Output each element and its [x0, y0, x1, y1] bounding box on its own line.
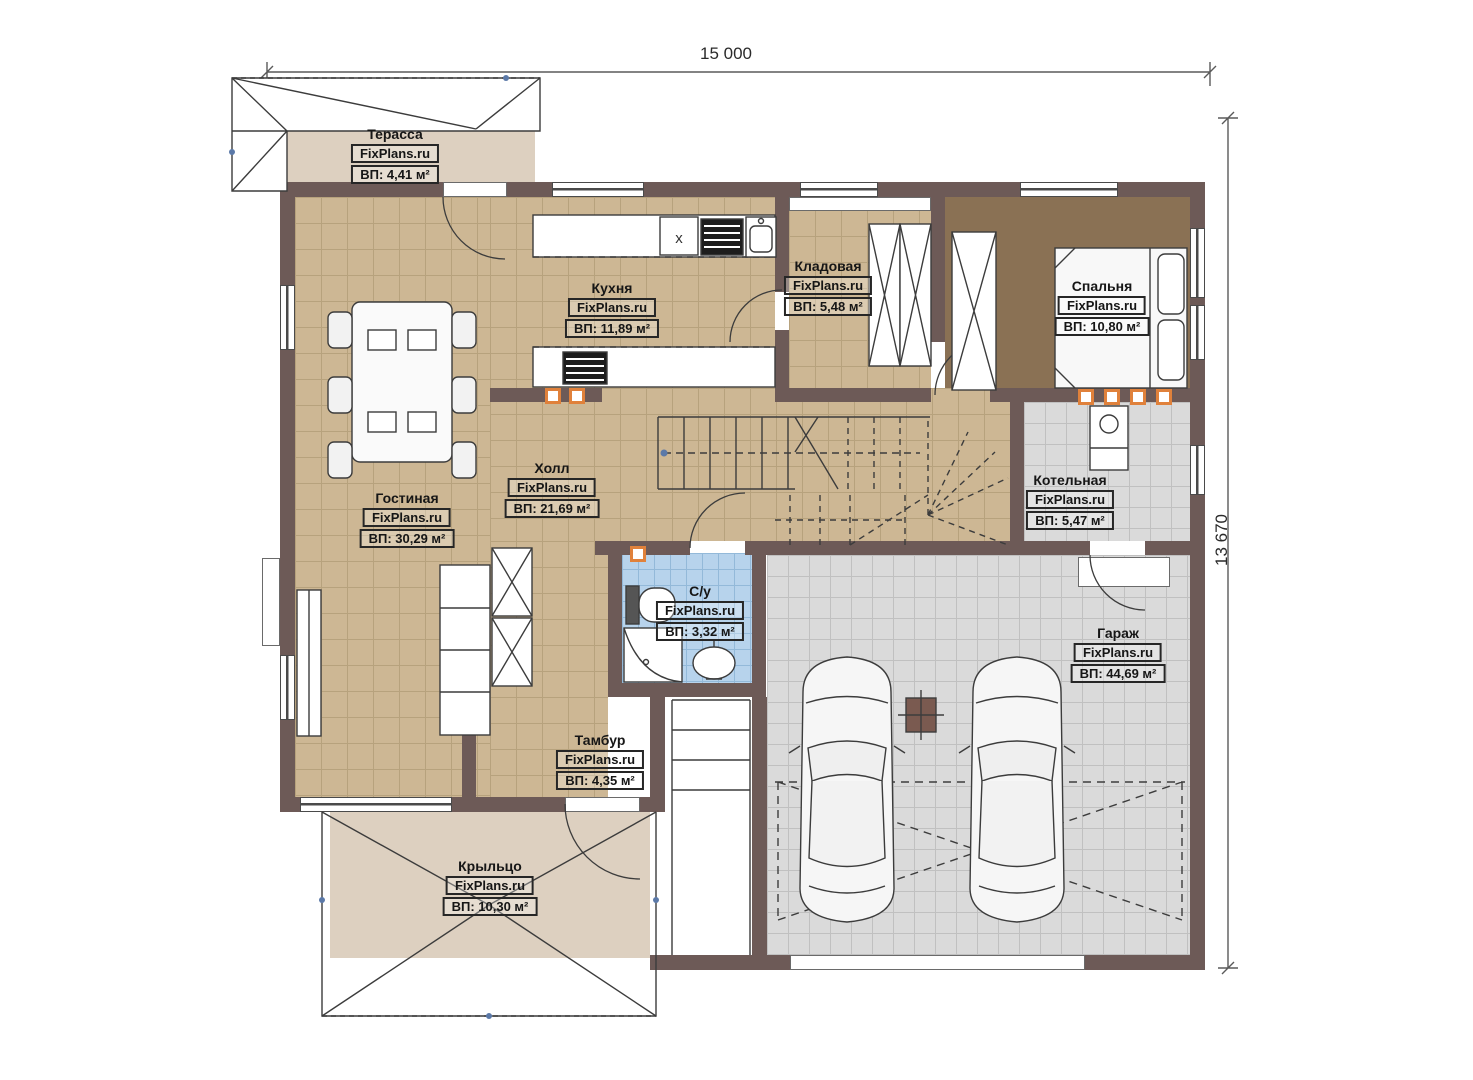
garage-gate-opening: [790, 955, 1085, 970]
wall-vestibule-right: [650, 697, 665, 812]
room-name: Гостиная: [360, 490, 455, 506]
room-label-bedroom: Спальня FixPlans.ru ВП: 10,80 м²: [1055, 278, 1150, 336]
room-name: Кладовая: [784, 258, 872, 274]
wall-garage-bottom-left: [650, 955, 790, 970]
window-kitchen: [552, 182, 644, 197]
room-area: ВП: 30,29 м²: [360, 529, 455, 548]
wall-garage-left: [752, 697, 767, 955]
window-boiler-right: [1190, 445, 1205, 495]
room-name: Гараж: [1071, 625, 1166, 641]
room-name: Тамбур: [556, 732, 644, 748]
window-bedroom-right-2: [1190, 305, 1205, 360]
room-area: ВП: 10,30 м²: [443, 897, 538, 916]
radiator-icon: [1156, 389, 1172, 405]
garage-side-door-landing: [1078, 557, 1170, 587]
dimension-width-label: 15 000: [700, 44, 752, 64]
window-bedroom-top: [1020, 182, 1118, 197]
room-label-vestibule: Тамбур FixPlans.ru ВП: 4,35 м²: [556, 732, 644, 790]
radiator-icon: [545, 388, 561, 404]
wall-vestibule-bottom-a: [470, 797, 565, 812]
wall-hall-top-a: [775, 388, 931, 402]
radiator-icon: [630, 546, 646, 562]
room-label-hall: Холл FixPlans.ru ВП: 21,69 м²: [505, 460, 600, 518]
storage-shelf: [789, 197, 931, 211]
window-living-bottom: [300, 797, 452, 812]
room-name: С/у: [656, 583, 744, 599]
brand-watermark: FixPlans.ru: [446, 876, 534, 895]
room-area: ВП: 5,47 м²: [1026, 511, 1114, 530]
room-area: ВП: 10,80 м²: [1055, 317, 1150, 336]
brand-watermark: FixPlans.ru: [363, 508, 451, 527]
brand-watermark: FixPlans.ru: [1026, 490, 1114, 509]
brand-watermark: FixPlans.ru: [656, 601, 744, 620]
radiator-icon: [1078, 389, 1094, 405]
room-label-terrace: Терасса FixPlans.ru ВП: 4,41 м²: [351, 126, 439, 184]
dimension-height-label: 13 670: [1212, 514, 1232, 566]
terrace-door-opening: [443, 182, 507, 197]
room-area: ВП: 5,48 м²: [784, 297, 872, 316]
room-area: ВП: 11,89 м²: [565, 319, 659, 338]
brand-watermark: FixPlans.ru: [1074, 643, 1162, 662]
wall-bath-bottom: [608, 683, 766, 697]
room-area: ВП: 44,69 м²: [1071, 664, 1166, 683]
brand-watermark: FixPlans.ru: [784, 276, 872, 295]
wall-bath-left: [608, 541, 622, 697]
room-label-kitchen: Кухня FixPlans.ru ВП: 11,89 м²: [565, 280, 659, 338]
floor-plan: x: [0, 0, 1473, 1080]
floor-garage: [767, 555, 1190, 955]
room-label-boiler-room: Котельная FixPlans.ru ВП: 5,47 м²: [1026, 472, 1114, 530]
wall-hall-boiler: [1010, 402, 1024, 541]
brand-watermark: FixPlans.ru: [556, 750, 644, 769]
window-storage: [800, 182, 878, 197]
wall-hall-bottom-b: [745, 541, 1010, 555]
room-name: Котельная: [1026, 472, 1114, 488]
exterior-steps-area: [665, 697, 753, 955]
wall-boiler-bottom-a: [1010, 541, 1090, 555]
wall-vestibule-bottom-b: [640, 797, 665, 812]
wall-kitchen-storage-lower: [775, 330, 789, 388]
radiator-icon: [1104, 389, 1120, 405]
wall-storage-bedroom: [931, 197, 945, 342]
window-bedroom-right-1: [1190, 228, 1205, 298]
room-label-garage: Гараж FixPlans.ru ВП: 44,69 м²: [1071, 625, 1166, 683]
room-name: Крыльцо: [443, 858, 538, 874]
room-label-porch: Крыльцо FixPlans.ru ВП: 10,30 м²: [443, 858, 538, 916]
window-living-left-2: [280, 655, 295, 720]
wall-corridor-left: [462, 690, 476, 797]
room-name: Холл: [505, 460, 600, 476]
brand-watermark: FixPlans.ru: [568, 298, 656, 317]
brand-watermark: FixPlans.ru: [508, 478, 596, 497]
room-area: ВП: 21,69 м²: [505, 499, 600, 518]
wall-right: [1190, 182, 1205, 970]
radiator-icon: [1130, 389, 1146, 405]
room-area: ВП: 4,35 м²: [556, 771, 644, 790]
window-living-left-1: [280, 285, 295, 350]
room-name: Спальня: [1055, 278, 1150, 294]
brand-watermark: FixPlans.ru: [351, 144, 439, 163]
radiator-icon: [569, 388, 585, 404]
brand-watermark: FixPlans.ru: [1058, 296, 1146, 315]
wall-bath-right: [752, 555, 766, 697]
room-name: Терасса: [351, 126, 439, 142]
room-name: Кухня: [565, 280, 659, 296]
left-exterior-stoop: [262, 558, 280, 646]
wall-boiler-bottom-b: [1145, 541, 1190, 555]
room-area: ВП: 3,32 м²: [656, 622, 744, 641]
room-label-bathroom: С/у FixPlans.ru ВП: 3,32 м²: [656, 583, 744, 641]
room-area: ВП: 4,41 м²: [351, 165, 439, 184]
room-label-living-room: Гостиная FixPlans.ru ВП: 30,29 м²: [360, 490, 455, 548]
vestibule-door-opening: [565, 797, 640, 812]
wall-garage-bottom-right: [1085, 955, 1205, 970]
room-label-storage: Кладовая FixPlans.ru ВП: 5,48 м²: [784, 258, 872, 316]
